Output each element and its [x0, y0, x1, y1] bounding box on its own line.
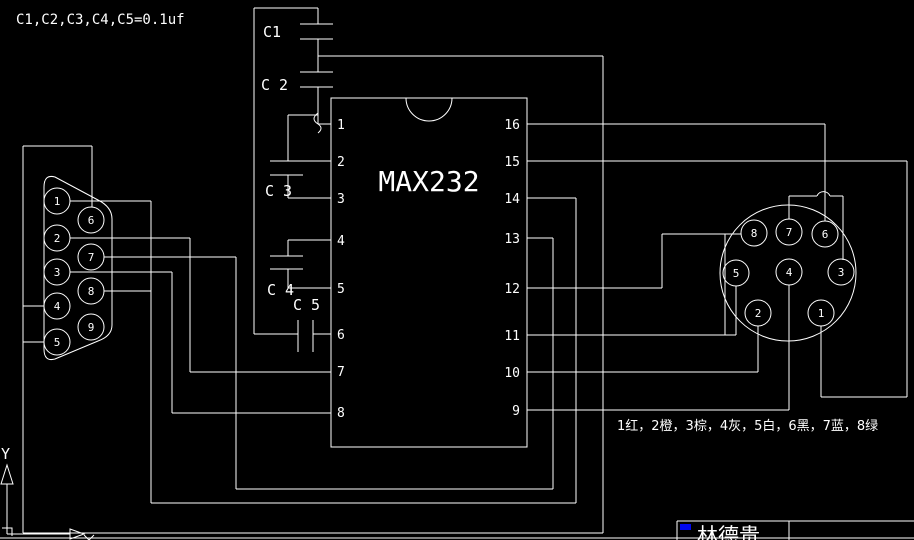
capacitor-label-c4: C 4 — [267, 281, 294, 299]
pin-label: 3 — [337, 192, 345, 207]
db9-pin-number: 1 — [54, 195, 61, 208]
wire-hop — [817, 192, 830, 196]
db9-pin-number: 4 — [54, 300, 61, 313]
pin-label: 14 — [504, 192, 520, 207]
ucs-y-arrowhead — [1, 465, 13, 484]
chip-notch — [406, 98, 452, 121]
db9-pin-5: 5 — [44, 329, 70, 355]
chip-body — [331, 98, 527, 447]
pin-label: 16 — [504, 118, 520, 133]
din-pin-8: 8 — [741, 220, 767, 246]
pin-label: 15 — [504, 155, 520, 170]
din-pin-6: 6 — [812, 221, 838, 247]
pin-label: 7 — [337, 365, 345, 380]
title-block-blue-marker — [680, 524, 691, 530]
pin-label: 8 — [337, 406, 345, 421]
ucs-y-axis-label: Y — [1, 445, 10, 463]
chip-left-pin-labels: 1 2 3 4 5 6 7 8 — [337, 118, 345, 421]
din-connector: 8 7 6 5 4 3 2 1 — [720, 205, 856, 341]
db9-pin-4: 4 — [44, 293, 70, 319]
schematic-canvas: C1 C 2 C 3 C 4 C 5 MAX232 1 2 3 4 5 6 7 … — [0, 0, 914, 540]
din-pin-number: 4 — [786, 266, 793, 279]
db9-pin-6: 6 — [78, 207, 104, 233]
db9-pin-8: 8 — [78, 278, 104, 304]
din-pin-7: 7 — [776, 219, 802, 245]
db9-pin-number: 2 — [54, 232, 61, 245]
pin-label: 13 — [504, 232, 520, 247]
db9-pin-number: 8 — [88, 285, 95, 298]
wire-color-legend: 1红，2橙，3棕，4灰，5白，6黑，7蓝，8绿 — [617, 418, 878, 434]
din-pin-number: 1 — [818, 307, 825, 320]
db9-pin-number: 7 — [88, 251, 95, 264]
capacitor-label-c2: C 2 — [261, 76, 288, 94]
din-pin-number: 8 — [751, 227, 758, 240]
db9-connector: 1 2 3 4 5 6 7 8 9 — [44, 176, 112, 359]
db9-pin-2: 2 — [44, 225, 70, 251]
capacitor-label-c1: C1 — [263, 23, 281, 41]
db9-pin-3: 3 — [44, 259, 70, 285]
db9-pin-7: 7 — [78, 244, 104, 270]
chip-label: MAX232 — [378, 165, 479, 198]
pin-label: 5 — [337, 282, 345, 297]
max232-chip: MAX232 1 2 3 4 5 6 7 8 16 15 14 13 12 11… — [331, 98, 527, 447]
pin-label: 11 — [504, 329, 520, 344]
capacitor-label-c3: C 3 — [265, 182, 292, 200]
db9-pin-number: 3 — [54, 266, 61, 279]
din-pin-4: 4 — [776, 259, 802, 285]
capacitor-value-note: C1,C2,C3,C4,C5=0.1uf — [16, 12, 185, 28]
pin-label: 1 — [337, 118, 345, 133]
db9-pin-number: 5 — [54, 336, 61, 349]
wires — [23, 8, 907, 533]
capacitors: C1 C 2 C 3 C 4 C 5 — [261, 23, 333, 352]
pin-label: 10 — [504, 366, 520, 381]
din-pin-number: 2 — [755, 307, 762, 320]
capacitor-label-c5: C 5 — [293, 296, 320, 314]
ucs-icon: Y — [1, 445, 94, 540]
din-pin-1: 1 — [808, 300, 834, 326]
pin-label: 9 — [512, 404, 520, 419]
din-pin-2: 2 — [745, 300, 771, 326]
cad-drawing-area: C1 C 2 C 3 C 4 C 5 MAX232 1 2 3 4 5 6 7 … — [0, 0, 914, 540]
db9-pin-number: 6 — [88, 214, 95, 227]
din-pin-number: 3 — [838, 266, 845, 279]
pin-label: 2 — [337, 155, 345, 170]
db9-pin-number: 9 — [88, 321, 95, 334]
din-pin-number: 6 — [822, 228, 829, 241]
db9-pin-1: 1 — [44, 188, 70, 214]
chip-right-pin-labels: 16 15 14 13 12 11 10 9 — [504, 118, 520, 419]
pin-label: 4 — [337, 234, 345, 249]
din-pin-number: 5 — [733, 267, 740, 280]
pin-label: 6 — [337, 328, 345, 343]
pin-label: 12 — [504, 282, 520, 297]
title-block: 林德贵 — [677, 521, 914, 540]
din-pin-number: 7 — [786, 226, 793, 239]
din-pin-3: 3 — [828, 259, 854, 285]
din-pin-5: 5 — [723, 260, 749, 286]
db9-pin-9: 9 — [78, 314, 104, 340]
